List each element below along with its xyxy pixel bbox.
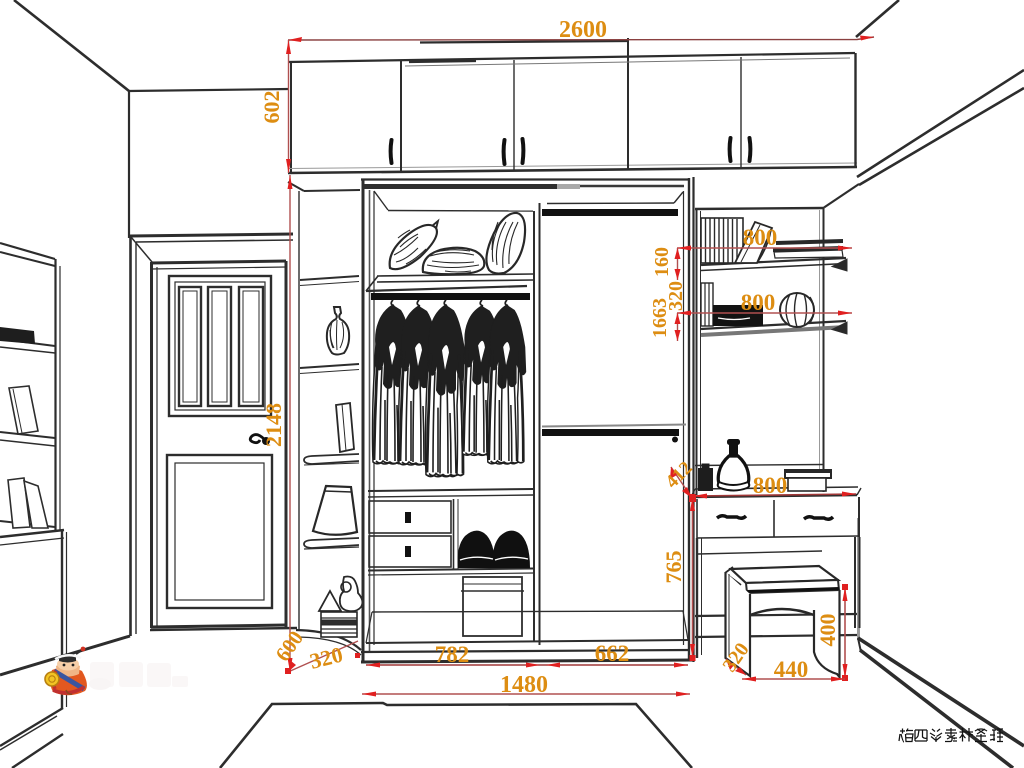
svg-text:2148: 2148 (261, 403, 286, 447)
svg-text:765: 765 (661, 551, 686, 584)
svg-text:800: 800 (743, 225, 778, 250)
svg-text:1480: 1480 (500, 672, 548, 698)
svg-text:602: 602 (259, 91, 284, 124)
svg-text:440: 440 (774, 657, 809, 682)
svg-text:400: 400 (815, 614, 840, 647)
svg-text:662: 662 (595, 641, 630, 666)
svg-text:1663: 1663 (649, 298, 671, 338)
svg-text:800: 800 (753, 473, 788, 498)
svg-text:800: 800 (741, 290, 776, 315)
svg-text:782: 782 (435, 642, 470, 667)
svg-text:2600: 2600 (559, 17, 607, 43)
svg-text:160: 160 (651, 247, 673, 277)
